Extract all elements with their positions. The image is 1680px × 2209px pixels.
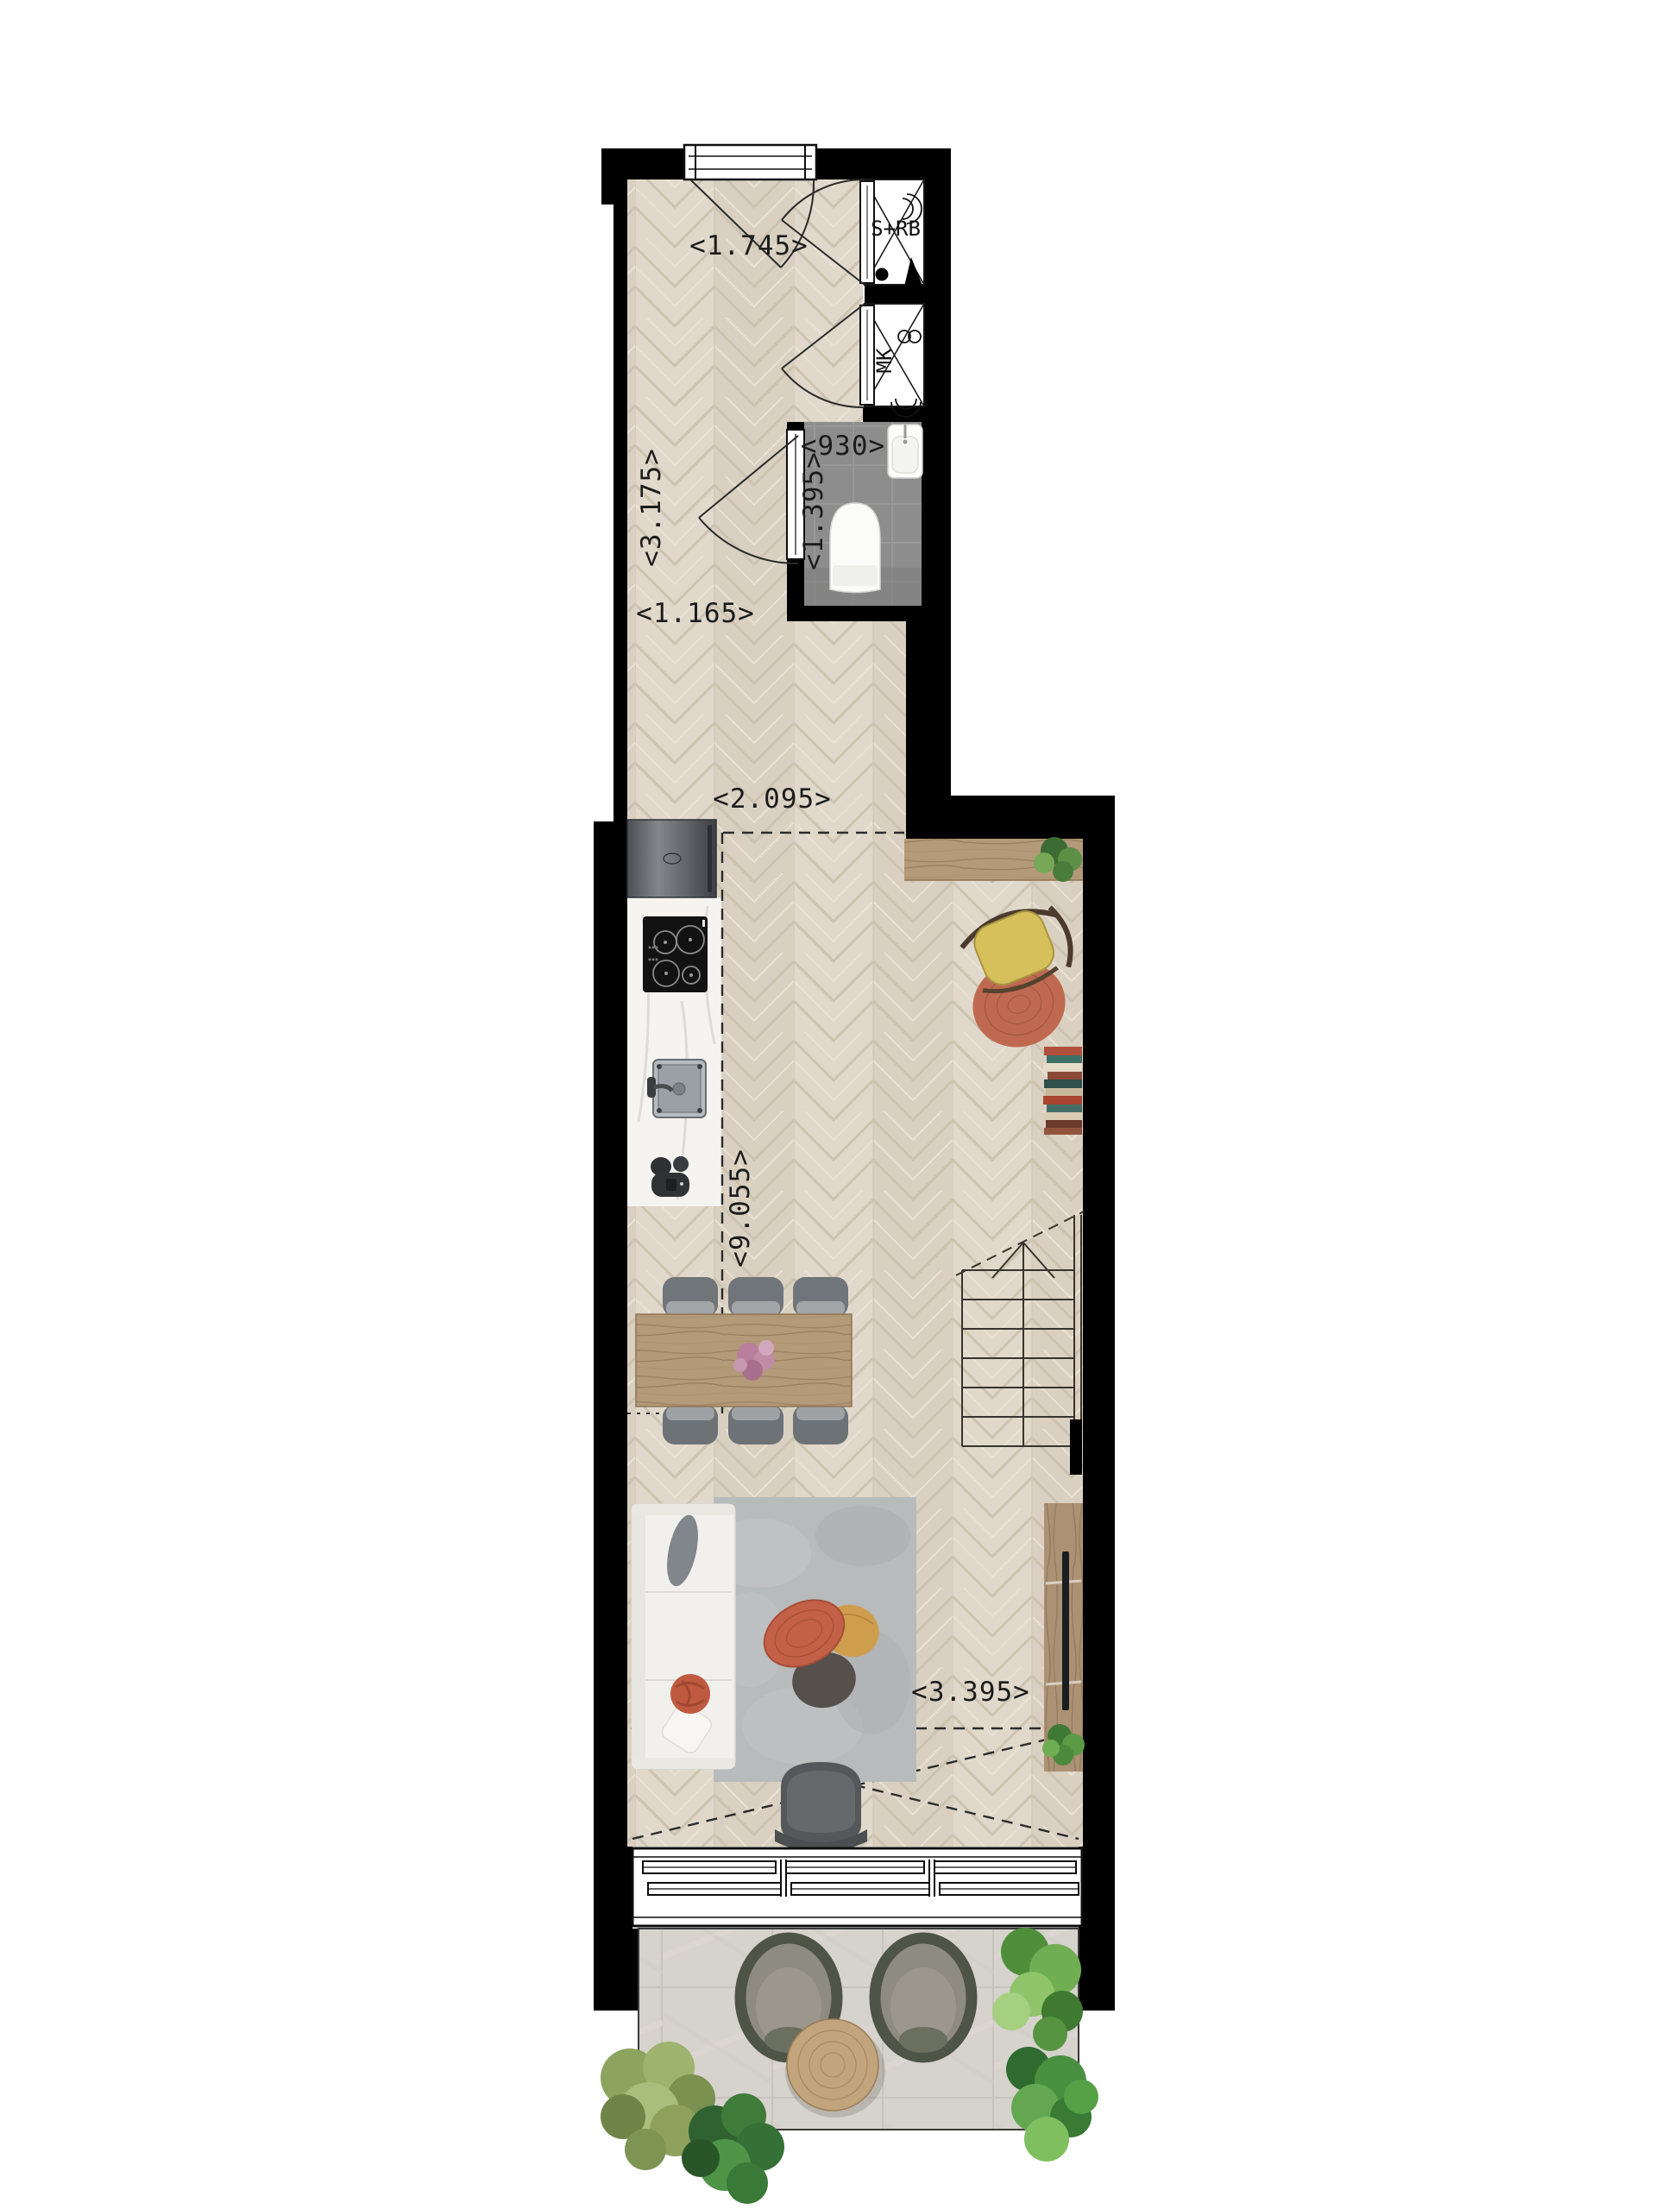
egg-chair-right bbox=[875, 1938, 972, 2057]
dining-chair bbox=[728, 1277, 783, 1317]
fridge-handle bbox=[708, 825, 712, 892]
pipe-dot-icon bbox=[876, 268, 889, 281]
dimension-label-living-length: <9.055> bbox=[725, 1149, 756, 1268]
sliding-door bbox=[632, 1848, 1082, 1926]
stair-wall-stub bbox=[1070, 1419, 1082, 1475]
terrace bbox=[601, 1928, 1098, 2204]
coffee-machine bbox=[651, 1156, 689, 1197]
closet-meter-label: MK bbox=[872, 348, 897, 373]
dining-chair bbox=[793, 1405, 848, 1444]
tv bbox=[1062, 1551, 1069, 1710]
lounge-armchair bbox=[775, 1762, 867, 1853]
fridge bbox=[627, 820, 716, 897]
book-stack bbox=[1043, 1047, 1082, 1135]
floorplan-page: <1.745> <3.175> <930> <1.395> <1.165> <2… bbox=[0, 0, 1680, 2209]
wc-washbasin bbox=[888, 425, 922, 478]
dining-chair bbox=[728, 1405, 783, 1444]
wc-toilet bbox=[830, 503, 880, 593]
floorplan-drawing: <1.745> <3.175> <930> <1.395> <1.165> <2… bbox=[0, 0, 1680, 2209]
dimension-label-wc-length: <1.395> bbox=[798, 451, 829, 570]
dining-set bbox=[636, 1277, 852, 1444]
sofa bbox=[632, 1504, 735, 1769]
sofa-pillow-knot bbox=[670, 1674, 710, 1714]
plant-right-lower bbox=[1006, 2047, 1098, 2162]
dining-chair bbox=[663, 1405, 718, 1444]
entry-window bbox=[684, 145, 816, 179]
kitchen-sink bbox=[647, 1060, 706, 1117]
dining-chair bbox=[663, 1277, 718, 1317]
dimension-label-kitchen-zone: <2.095> bbox=[713, 784, 832, 815]
dining-chair bbox=[793, 1277, 848, 1317]
dimension-label-hall-width-lower: <1.165> bbox=[636, 598, 755, 629]
closet-utility-label: S+RB bbox=[871, 217, 921, 241]
induction-hob bbox=[643, 916, 708, 992]
dimension-label-hall-length: <3.175> bbox=[636, 448, 667, 567]
tv-cabinet bbox=[1042, 1503, 1085, 1772]
kitchen bbox=[627, 820, 721, 1206]
dimension-label-entry-width: <1.745> bbox=[689, 230, 809, 261]
dimension-label-living-width: <3.395> bbox=[911, 1677, 1030, 1708]
